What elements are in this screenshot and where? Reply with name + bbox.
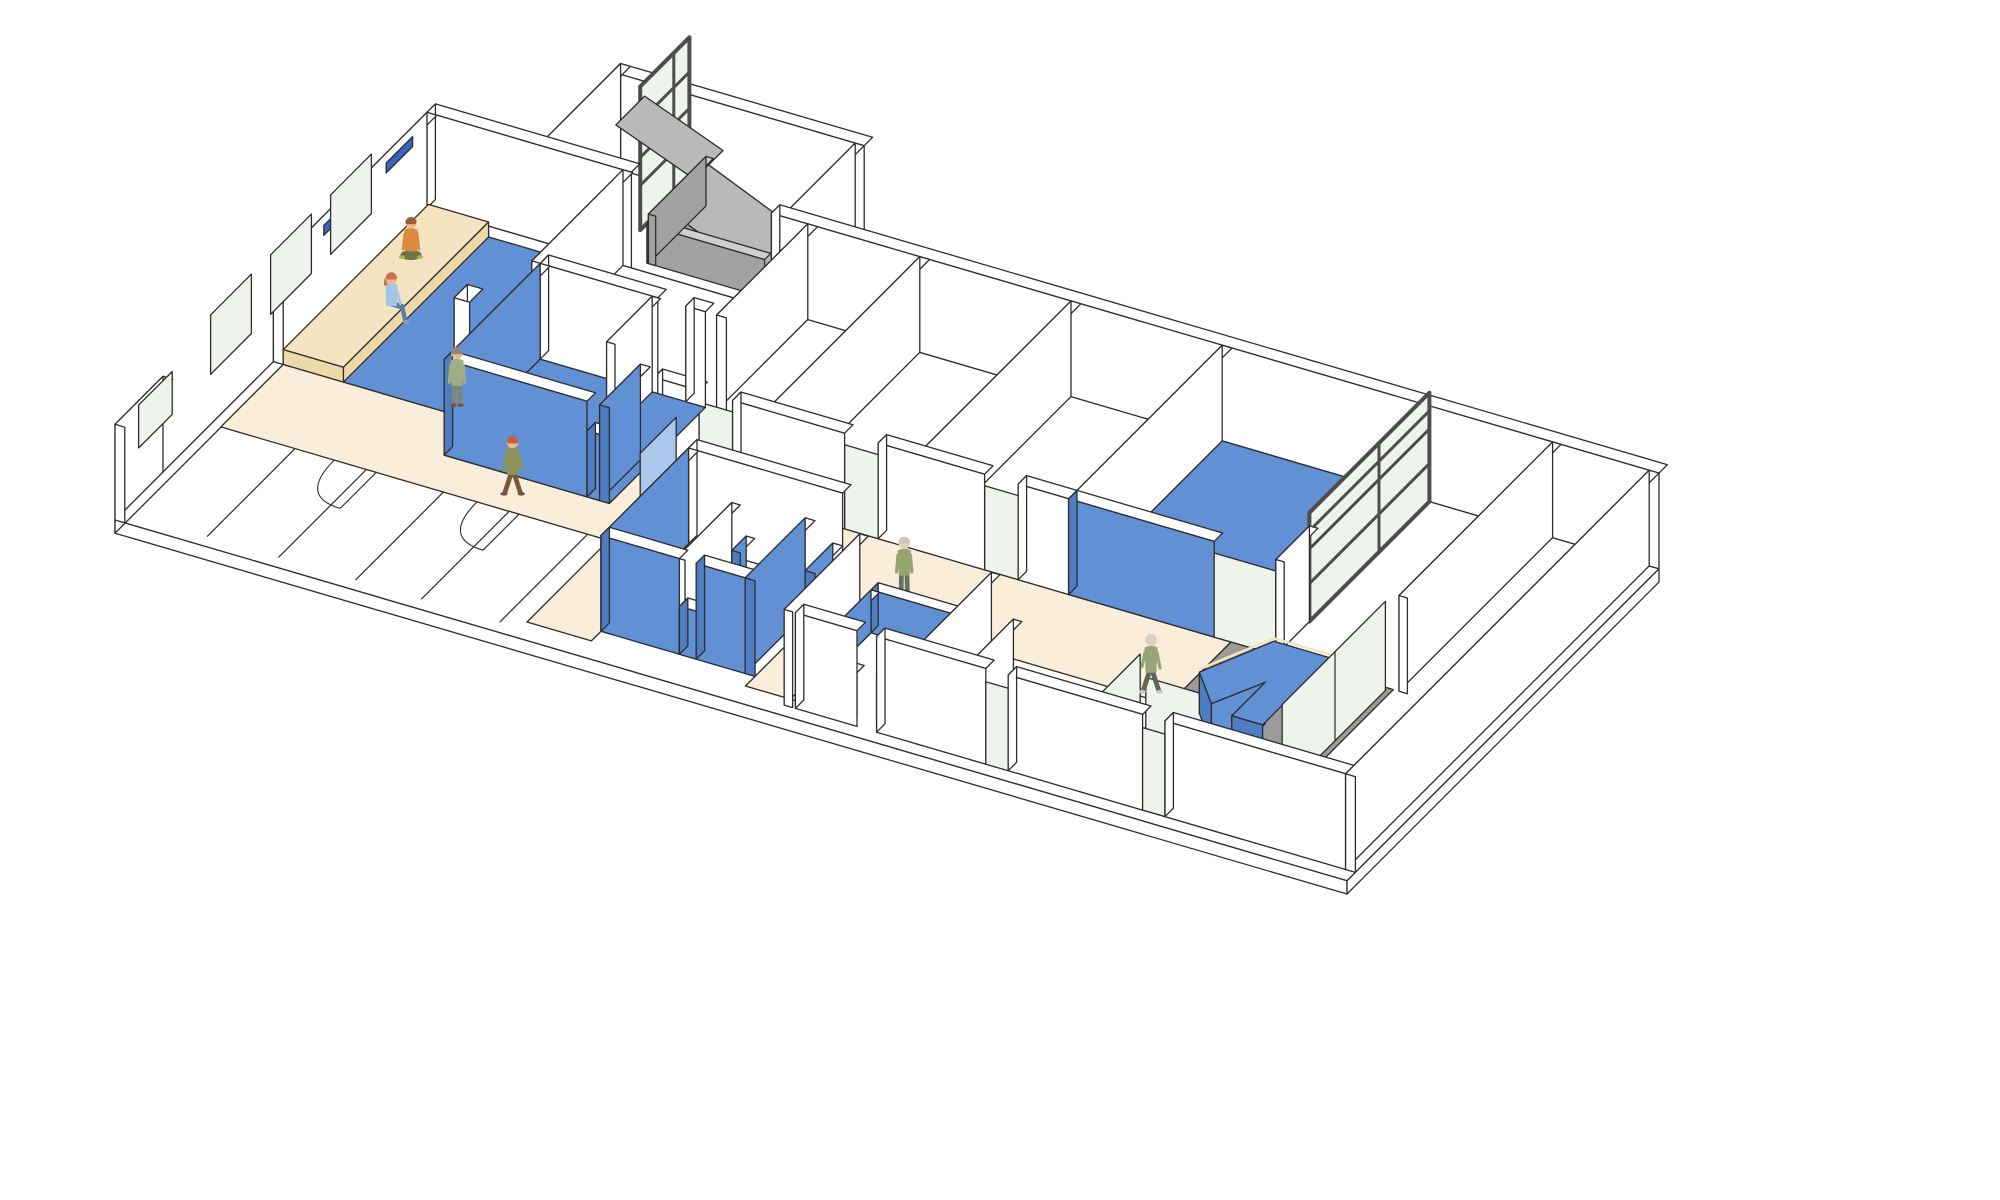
person-standing-lounge-torso: [450, 359, 463, 386]
meeting-room-1-right-wall-end: [600, 405, 610, 504]
axonometric-floor-plan-stage: [0, 0, 2000, 1200]
person-standing-hall-torso: [898, 549, 911, 576]
person-standing-lounge-shoe-r: [457, 403, 463, 406]
front-wall-segment-1-end: [795, 604, 803, 708]
east-blue-feature-wall-end: [1069, 490, 1077, 594]
person-sitting-crosslegged-shoe-r: [417, 255, 423, 259]
front-wall-segment-3-end: [1008, 667, 1016, 771]
person-walking-east-hall-torso: [1144, 646, 1157, 673]
person-standing-lounge-arm-l: [449, 365, 450, 382]
person-sitting-crosslegged-torso: [404, 228, 417, 251]
east-back-room-wall-end: [1399, 596, 1407, 694]
person-sitting-crosslegged-arm-r: [417, 233, 419, 249]
person-standing-hall-arm-r: [910, 555, 911, 572]
front-wall-segment-4-end: [1165, 713, 1173, 817]
person-standing-lounge-shoe-l: [450, 403, 456, 406]
east-glass-door: [1214, 553, 1276, 655]
east-end-wall-end: [1346, 774, 1356, 873]
meeting-room-1-front-wall-low-end: [587, 423, 595, 497]
person-sitting-crosslegged-arm-l: [403, 233, 405, 249]
front-wall-segment-1-face: [795, 613, 857, 727]
west-front-wall-stub-end: [115, 424, 125, 523]
front-wall-glass-1: [986, 682, 1008, 771]
corridor-back-wall-4-end: [1018, 476, 1026, 580]
glass-pane-west-1: [211, 274, 252, 374]
person-walking-corridor-torso: [506, 448, 519, 475]
meeting-room-1-back-wall-b-end: [686, 298, 694, 402]
corridor-glass-door-3: [985, 486, 1019, 580]
person-sitting-bench-shoe: [403, 320, 409, 323]
corridor-glass-door-2: [845, 445, 879, 539]
axonometric-floor-plan: [0, 0, 2000, 1200]
meeting-room-2-right-wall-end: [745, 578, 755, 677]
person-sitting-crosslegged-shoe-l: [399, 255, 405, 259]
front-wall-glass-2: [1143, 728, 1165, 817]
person-walking-east-hall-shoe-back: [1156, 690, 1163, 694]
front-wall-segment-2-end: [877, 628, 885, 732]
person-walking-corridor-shoe-front: [518, 492, 525, 496]
meeting-room-2-front-wall-a-end: [601, 527, 609, 631]
person-walking-east-hall-shoe-front: [1139, 690, 1146, 694]
meeting-room-2-front-wall-low-end: [679, 598, 687, 654]
person-walking-corridor-shoe-back: [500, 492, 507, 496]
person-sitting-bench-shin: [402, 307, 405, 321]
corridor-back-wall-3-end: [878, 435, 886, 539]
person-standing-hall-arm-l: [897, 555, 898, 572]
person-sitting-bench-torso: [385, 283, 397, 306]
stair-parapet-side-end: [648, 214, 655, 266]
meeting-room-2-front-wall-b-end: [696, 555, 704, 659]
person-standing-lounge-arm-r: [463, 365, 464, 382]
front-band-divider-wall-1-end: [784, 609, 792, 707]
back-room-wall-2-end: [717, 315, 727, 414]
